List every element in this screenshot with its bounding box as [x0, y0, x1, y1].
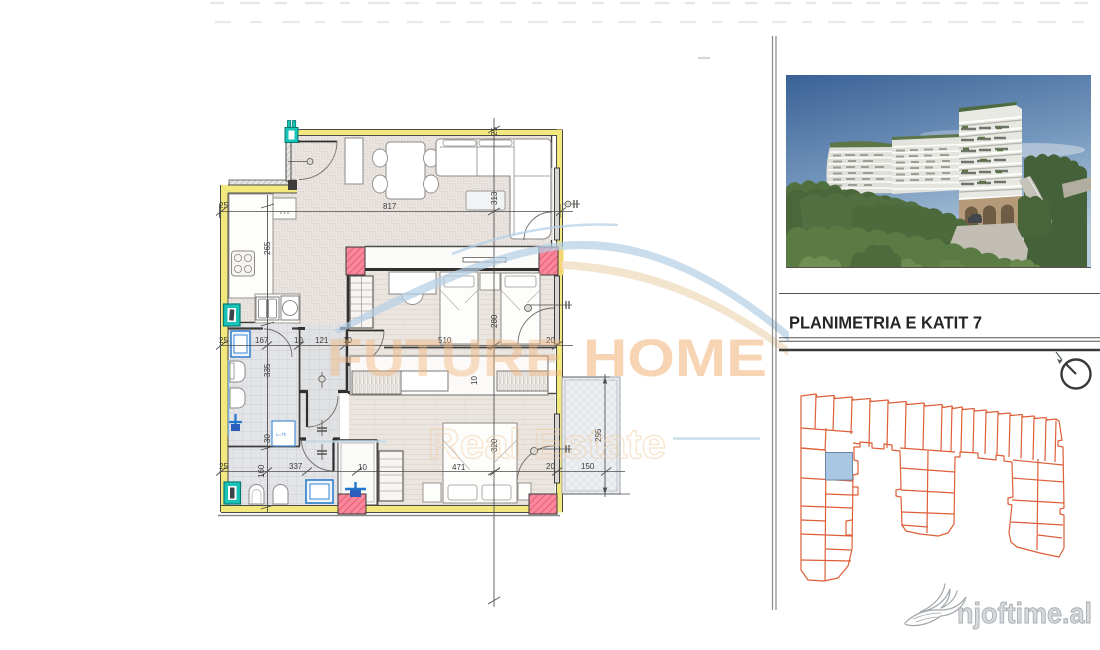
svg-text:10: 10 [358, 463, 367, 472]
svg-text:L=Th: L=Th [276, 432, 287, 437]
svg-text:HOME: HOME [583, 329, 767, 388]
svg-text:25: 25 [219, 336, 228, 345]
svg-text:25: 25 [219, 201, 228, 210]
svg-text:PLANIMETRIA E KATIT 7: PLANIMETRIA E KATIT 7 [789, 313, 982, 333]
svg-text:335: 335 [263, 363, 272, 377]
svg-text:10: 10 [294, 336, 303, 345]
svg-text:160: 160 [257, 464, 266, 478]
svg-text:280: 280 [490, 314, 499, 328]
svg-text:337: 337 [289, 462, 303, 471]
svg-text:265: 265 [263, 241, 272, 255]
svg-text:njoftime.al: njoftime.al [957, 598, 1092, 630]
svg-text:30: 30 [263, 434, 272, 443]
svg-text:Real Estate: Real Estate [428, 420, 666, 467]
svg-text:817: 817 [383, 202, 397, 211]
svg-text:313: 313 [490, 191, 499, 205]
svg-text:FUTURE: FUTURE [327, 329, 564, 388]
svg-text:25: 25 [490, 127, 499, 136]
svg-text:167: 167 [255, 336, 269, 345]
svg-text:25: 25 [219, 462, 228, 471]
